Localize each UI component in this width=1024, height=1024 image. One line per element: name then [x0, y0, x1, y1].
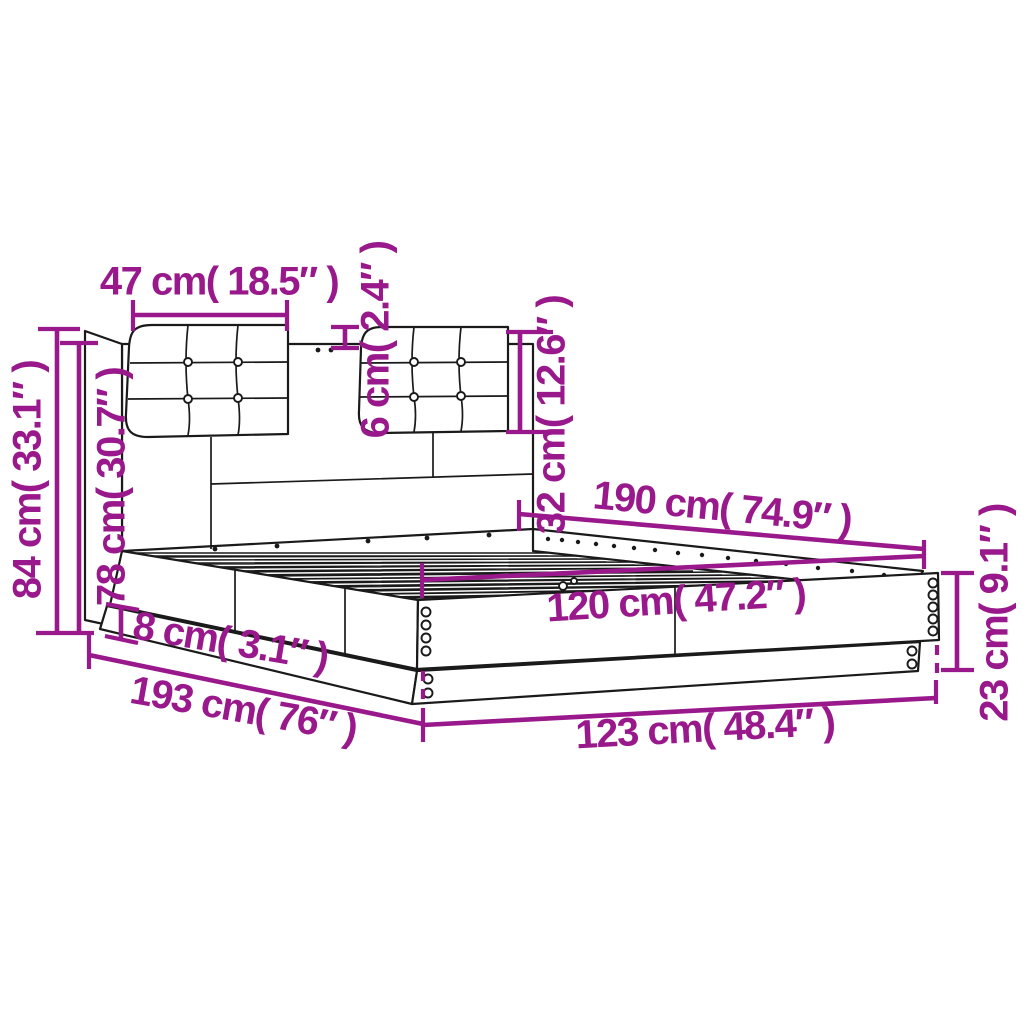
product-dimension-diagram: 47 cm( 18.5″ ) 6 cm( 2.4″ ) 32 cm( 12.6″… — [0, 0, 1024, 1024]
dim-label-cushion-width: 47 cm( 18.5″ ) — [100, 260, 338, 304]
dim-label-headboard-total-height: 84 cm( 33.1″ ) — [6, 361, 50, 599]
dimension-frame-height: 23 cm( 9.1″ ) — [941, 504, 1017, 722]
dim-label-width-outer: 123 cm( 48.4″ ) — [574, 700, 835, 758]
left-cushion-outline — [126, 325, 288, 437]
dim-label-cushion-gap: 6 cm( 2.4″ ) — [354, 241, 398, 438]
dim-label-cushion-height: 32 cm( 12.6″ ) — [530, 296, 574, 534]
bed-dimension-drawing: 47 cm( 18.5″ ) 6 cm( 2.4″ ) 32 cm( 12.6″… — [0, 0, 1024, 1024]
left-cushion — [126, 325, 288, 437]
dimension-headboard-panel-height: 78 cm( 30.7″ ) — [60, 343, 134, 633]
dimension-cushion-width: 47 cm( 18.5″ ) — [100, 260, 338, 331]
dim-label-frame-height: 23 cm( 9.1″ ) — [973, 504, 1017, 722]
dim-label-headboard-panel-height: 78 cm( 30.7″ ) — [90, 368, 134, 606]
